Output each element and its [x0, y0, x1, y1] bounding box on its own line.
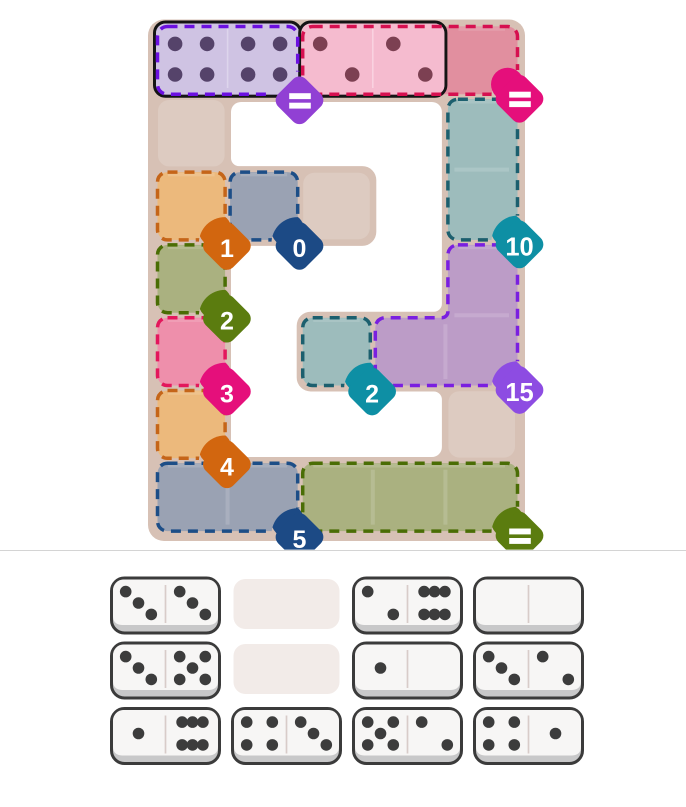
- svg-text:1: 1: [220, 235, 234, 263]
- svg-text:2: 2: [365, 381, 379, 409]
- svg-text:15: 15: [505, 379, 533, 407]
- svg-text:10: 10: [505, 233, 533, 261]
- svg-text:4: 4: [220, 453, 234, 481]
- svg-text:5: 5: [293, 526, 307, 554]
- svg-text:2: 2: [220, 308, 234, 336]
- svg-text:0: 0: [293, 235, 307, 263]
- svg-text:3: 3: [220, 381, 234, 409]
